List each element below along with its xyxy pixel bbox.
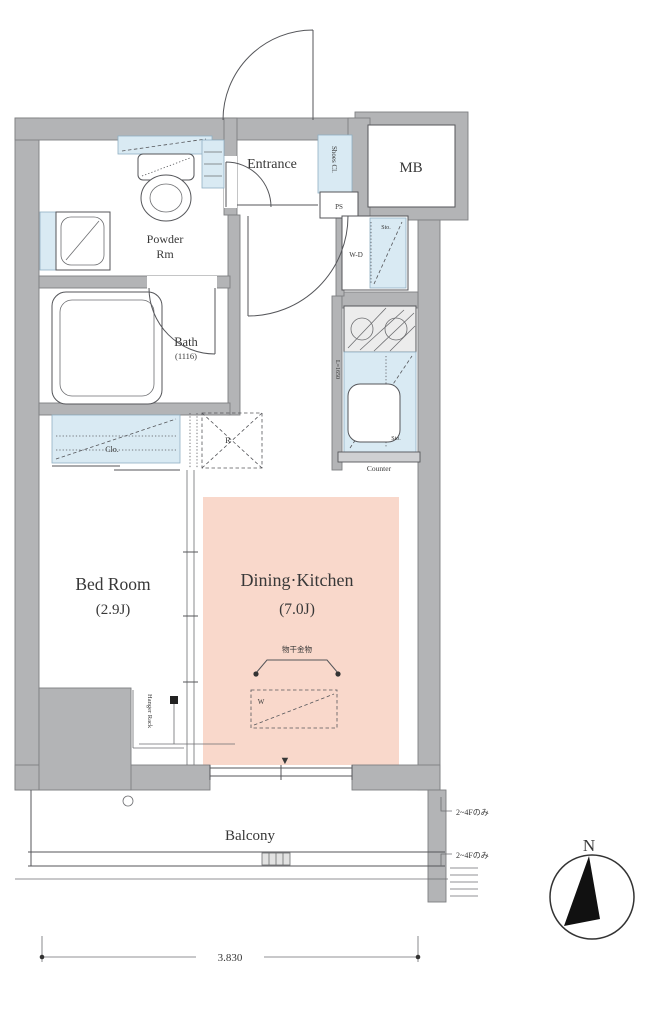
wall-right — [418, 220, 440, 790]
wall-bottom-right — [352, 765, 440, 790]
entrance-label: Entrance — [247, 157, 297, 172]
wall-left — [15, 118, 39, 790]
compass-north-label: N — [583, 836, 595, 855]
compass-needle — [564, 856, 600, 926]
dining-kitchen-floor — [203, 497, 399, 765]
wd-storage-label: Sto. — [381, 225, 391, 231]
kitchen-length-label: L=1650 — [334, 360, 340, 379]
toilet-bowl — [141, 175, 191, 221]
dimension-label: 3.830 — [218, 952, 243, 964]
fridge-cross — [202, 413, 262, 468]
dimension-dot-left — [40, 955, 45, 960]
closet — [52, 415, 180, 470]
washbasin — [40, 212, 110, 270]
hanger-rack-label: Hanger Rack — [146, 694, 153, 729]
washing-machine-label: W — [258, 698, 265, 706]
refrigerator-space — [202, 413, 262, 468]
floor-note-1: 2~4Fのみ — [456, 808, 489, 817]
bracket-dot-left — [253, 671, 258, 676]
pipe-space-label: PS — [335, 203, 343, 211]
entrance-door-arc — [223, 30, 313, 120]
mb-label: MB — [399, 160, 422, 176]
kitchen-sink — [348, 384, 400, 442]
wall-bath-closet — [39, 403, 230, 415]
bracket-dot-right — [335, 671, 340, 676]
window-marker: ▼ — [280, 755, 291, 767]
closet-label: Clo. — [105, 445, 119, 454]
balcony-label: Balcony — [225, 828, 275, 844]
powder-label-2: Rm — [156, 247, 174, 261]
bath-label: Bath — [174, 335, 198, 349]
bedroom-label: Bed Room — [75, 574, 151, 594]
bedroom-size-label: (2.9J) — [96, 602, 131, 618]
sliding-partition — [183, 470, 198, 765]
opening-bath-door — [147, 276, 217, 289]
bath-size-label: (1116) — [175, 351, 197, 361]
window-lines — [210, 765, 352, 780]
counter-label: Counter — [367, 464, 392, 473]
dk-window — [210, 765, 352, 780]
fridge-label: R — [225, 435, 231, 445]
wall-bedroom-jut — [39, 688, 131, 790]
powder-label-1: Powder — [147, 232, 184, 246]
wd-label: W-D — [349, 251, 363, 259]
counter-bar — [338, 452, 420, 462]
dk-label: Dining·Kitchen — [241, 570, 354, 590]
dk-size-label: (7.0J) — [279, 601, 315, 618]
compass — [550, 855, 634, 939]
partition-ticks — [183, 552, 198, 682]
pillar-dotted — [190, 413, 197, 468]
neighbor-hatch — [450, 868, 478, 896]
shoes-closet-label: Shoes Cl. — [330, 146, 338, 173]
toilet-area — [118, 136, 224, 221]
wall-kitchen-left — [332, 296, 342, 470]
balcony-rail — [28, 852, 445, 866]
laundry-hardware-label: 物干金物 — [282, 644, 312, 654]
wall-balcony-partition — [428, 790, 446, 902]
washbasin-side — [40, 212, 56, 270]
floor-plan: Entrance MB Powder Rm Bath (1116) Bed Ro… — [0, 0, 650, 1024]
kitchen-storage-label: Sto. — [391, 436, 401, 442]
floor-note-2: 2~4Fのみ — [456, 851, 489, 860]
bathtub — [52, 292, 162, 404]
wall-corridor-left — [228, 215, 240, 415]
hanger-post — [170, 696, 178, 704]
floor-plan-drawing: Entrance MB Powder Rm Bath (1116) Bed Ro… — [0, 0, 650, 1024]
drain-circle — [123, 796, 133, 806]
kitchen — [338, 306, 420, 462]
dimension-dot-right — [416, 955, 421, 960]
bathtub-outer — [52, 292, 162, 404]
